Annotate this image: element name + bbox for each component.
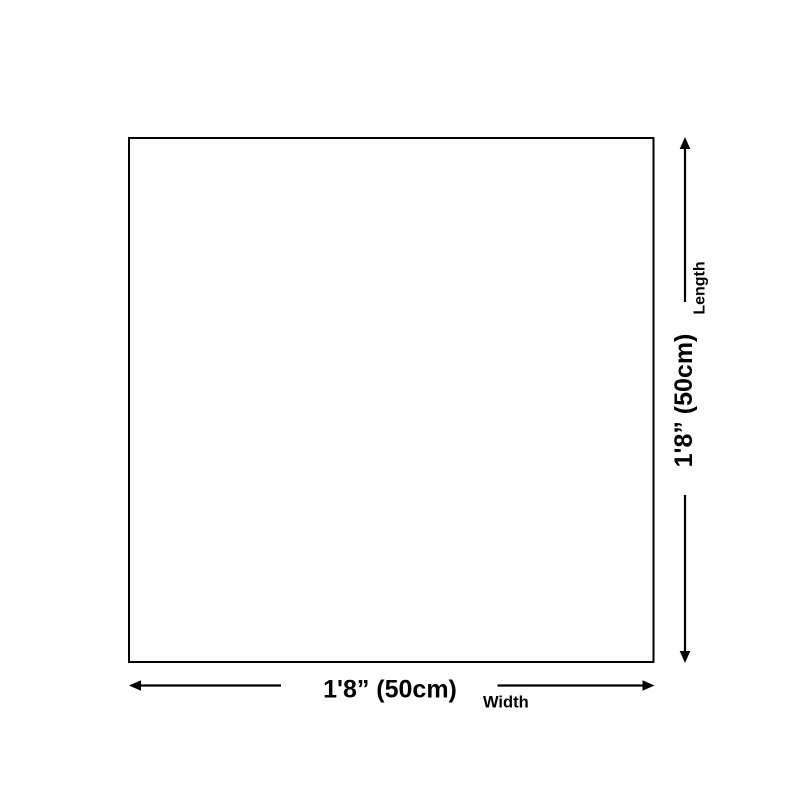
- svg-text:Width: Width: [483, 694, 529, 712]
- svg-text:1'8” (50cm): 1'8” (50cm): [323, 676, 457, 704]
- svg-text:Length: Length: [692, 261, 709, 314]
- svg-text:1'8” (50cm): 1'8” (50cm): [670, 334, 698, 468]
